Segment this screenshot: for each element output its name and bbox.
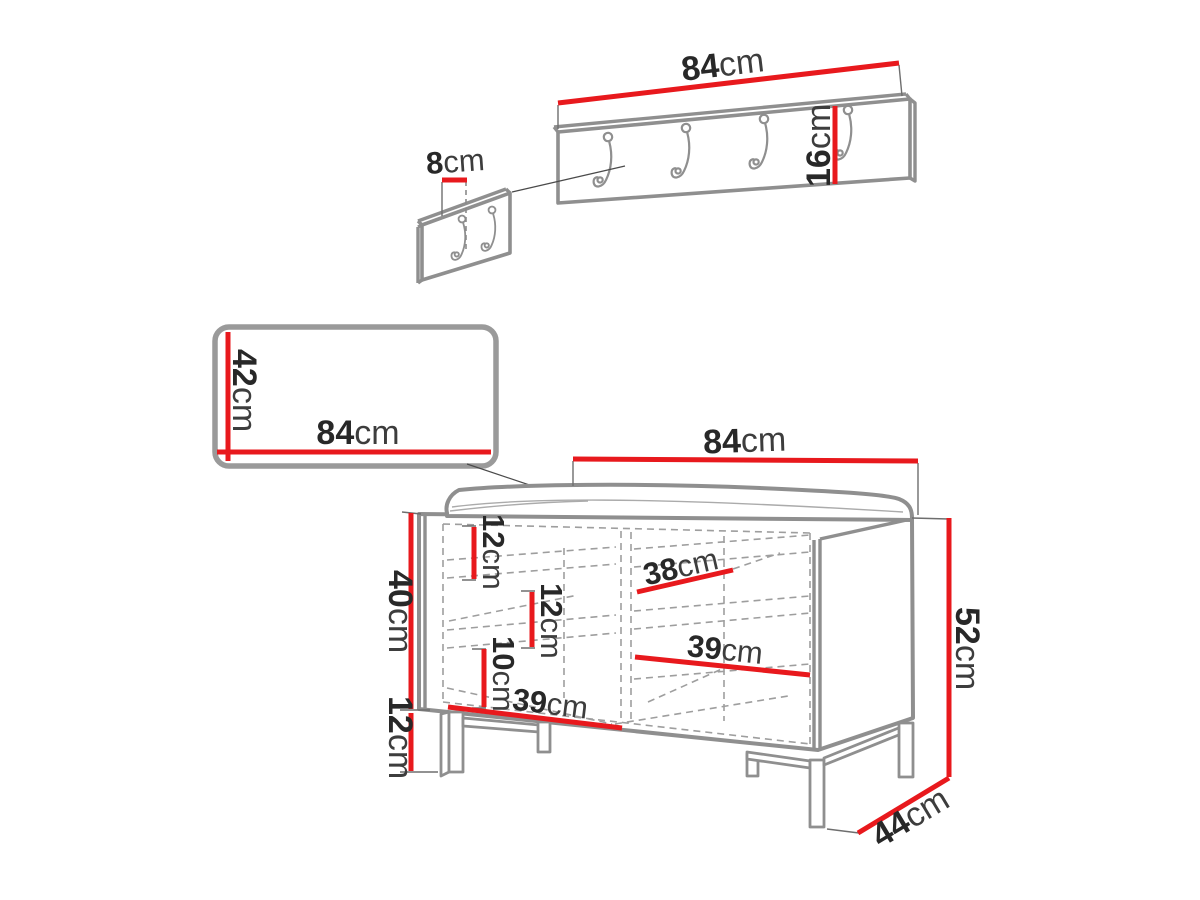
shoe-bench: 84cm 52cm 44cm 40cm 12cm 12cm 12cm 10cm …: [381, 421, 986, 856]
front-right-leg: [810, 760, 824, 827]
body-height-label: 40cm: [381, 570, 419, 653]
rack-height-label: 16cm: [800, 104, 838, 187]
bench-depth-label: 44cm: [865, 780, 956, 855]
furniture-dimension-diagram: 84cm 16cm 8cm 42cm 84cm: [0, 0, 1200, 900]
mirror-panel: 42cm 84cm: [215, 327, 577, 501]
coat-rack-panel: 84cm 16cm: [554, 41, 915, 203]
bench-width-label: 84cm: [702, 421, 786, 462]
bench-height-label: 52cm: [948, 607, 986, 690]
back-right-leg: [899, 723, 913, 777]
hook-offset-label: 8cm: [425, 142, 486, 181]
middle-gap-label: 12cm: [534, 583, 569, 659]
bench-cushion: [447, 485, 913, 520]
mirror-height-label: 42cm: [225, 349, 263, 432]
back-left-leg: [538, 722, 550, 752]
mirror-width-label: 84cm: [316, 414, 399, 452]
leg-height-label: 12cm: [381, 696, 419, 779]
diagram-canvas: 84cm 16cm 8cm 42cm 84cm: [0, 0, 1200, 900]
front-left-leg: [449, 712, 463, 772]
cushion-outline: [447, 485, 913, 520]
top-gap-label: 12cm: [476, 514, 511, 590]
